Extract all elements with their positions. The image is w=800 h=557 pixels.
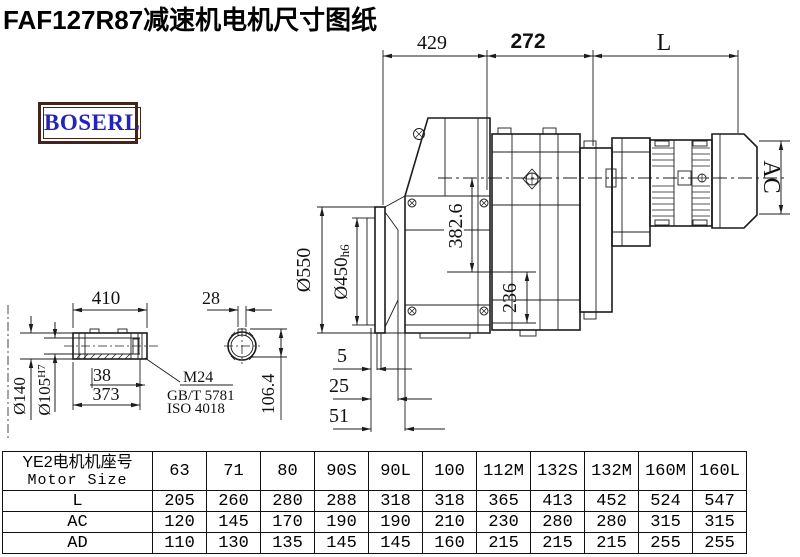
table-cell: 280 xyxy=(261,491,315,512)
brand-logo-text: BOSERL xyxy=(44,110,140,136)
dim-label-410: 410 xyxy=(92,288,121,309)
dim-label-236: 236 xyxy=(499,283,521,313)
table-size-col: 132M xyxy=(585,452,639,491)
table-cell: 260 xyxy=(207,491,261,512)
table-size-col: 63 xyxy=(153,452,207,491)
table-cell: 318 xyxy=(369,491,423,512)
dim-label-373: 373 xyxy=(93,384,120,404)
brand-logo-inner-frame: BOSERL xyxy=(43,107,141,139)
dim-label-bore: Ø105H7 xyxy=(35,364,54,416)
row-label: L xyxy=(3,491,153,512)
dim-label-ac: AC xyxy=(758,160,784,193)
table-size-col: 132S xyxy=(531,452,585,491)
dim-label-429: 429 xyxy=(417,32,447,54)
table-size-col: 112M xyxy=(477,452,531,491)
dim-label-flange-od: Ø550 xyxy=(293,248,315,292)
table-cell: 255 xyxy=(639,533,693,554)
mounting-offset-dimensions: 5 25 51 xyxy=(329,328,445,432)
table-header-en: Motor Size xyxy=(3,472,152,489)
row-label: AC xyxy=(3,512,153,533)
table-cell: 280 xyxy=(585,512,639,533)
table-size-col: 90S xyxy=(315,452,369,491)
dim-label-28: 28 xyxy=(202,288,220,308)
dim-label-L: L xyxy=(657,30,672,56)
table-row-AD: AD 110 130 135 145 145 160 215 215 215 2… xyxy=(3,533,747,554)
table-cell: 280 xyxy=(531,512,585,533)
table-cell: 524 xyxy=(639,491,693,512)
table-cell: 205 xyxy=(153,491,207,512)
motor-adapter xyxy=(580,141,616,319)
table-cell: 160 xyxy=(423,533,477,554)
table-cell: 215 xyxy=(585,533,639,554)
table-cell: 547 xyxy=(693,491,747,512)
dim-label-shaft-od: Ø140 xyxy=(10,377,29,415)
table-size-col: 71 xyxy=(207,452,261,491)
dim-label-25: 25 xyxy=(329,375,349,397)
table-cell: 190 xyxy=(369,512,423,533)
table-cell: 452 xyxy=(585,491,639,512)
brand-logo-box: BOSERL xyxy=(38,102,138,144)
table-cell: 315 xyxy=(693,512,747,533)
flange-diameter-dimensions: Ø550 Ø450h6 xyxy=(293,207,375,333)
motor-size-table: YE2电机机座号 Motor Size 63 71 80 90S 90L 100… xyxy=(2,451,747,554)
table-size-col: 160L xyxy=(693,452,747,491)
table-cell: 215 xyxy=(531,533,585,554)
table-cell: 145 xyxy=(315,533,369,554)
table-cell: 130 xyxy=(207,533,261,554)
table-cell: 145 xyxy=(207,512,261,533)
motor xyxy=(612,134,757,246)
page-title: FAF127R87减速机电机尺寸图纸 xyxy=(3,0,377,37)
table-row-AC: AC 120 145 170 190 190 210 230 280 280 3… xyxy=(3,512,747,533)
table-cell: 210 xyxy=(423,512,477,533)
table-cell: 120 xyxy=(153,512,207,533)
table-size-col: 80 xyxy=(261,452,315,491)
table-cell: 145 xyxy=(369,533,423,554)
table-cell: 135 xyxy=(261,533,315,554)
table-header-cn: YE2电机机座号 xyxy=(3,454,152,472)
dim-label-272: 272 xyxy=(510,30,545,53)
leader-label-m24: M24 xyxy=(183,369,213,386)
table-row-L: L 205 260 280 288 318 318 365 413 452 52… xyxy=(3,491,747,512)
dim-label-106-4: 106.4 xyxy=(258,374,278,415)
ac-dimension: AC xyxy=(758,141,790,214)
hollow-shaft-detail: 410 Ø140 Ø105H7 38 373 M24 GB/T 5781 ISO… xyxy=(8,288,235,440)
table-size-col: 90L xyxy=(369,452,423,491)
dim-label-5: 5 xyxy=(337,345,347,367)
table-cell: 110 xyxy=(153,533,207,554)
dim-label-38: 38 xyxy=(93,365,111,385)
table-header-row: YE2电机机座号 Motor Size 63 71 80 90S 90L 100… xyxy=(3,452,747,491)
table-cell: 318 xyxy=(423,491,477,512)
table-cell: 170 xyxy=(261,512,315,533)
table-size-col: 100 xyxy=(423,452,477,491)
dim-label-flange-spigot: Ø450h6 xyxy=(331,244,352,300)
table-cell: 230 xyxy=(477,512,531,533)
table-cell: 190 xyxy=(315,512,369,533)
table-cell: 365 xyxy=(477,491,531,512)
table-cell: 315 xyxy=(639,512,693,533)
table-cell: 288 xyxy=(315,491,369,512)
output-flange xyxy=(367,196,405,401)
table-cell: 255 xyxy=(693,533,747,554)
table-header-motor-size: YE2电机机座号 Motor Size xyxy=(3,452,153,491)
drawing-sheet: 429 272 L Ø550 Ø450h6 xyxy=(0,0,800,557)
dim-label-51: 51 xyxy=(329,405,349,427)
dim-label-382-6: 382.6 xyxy=(445,204,467,249)
leader-label-iso: ISO 4018 xyxy=(167,401,225,417)
row-label: AD xyxy=(3,533,153,554)
table-cell: 215 xyxy=(477,533,531,554)
table-cell: 413 xyxy=(531,491,585,512)
table-size-col: 160M xyxy=(639,452,693,491)
